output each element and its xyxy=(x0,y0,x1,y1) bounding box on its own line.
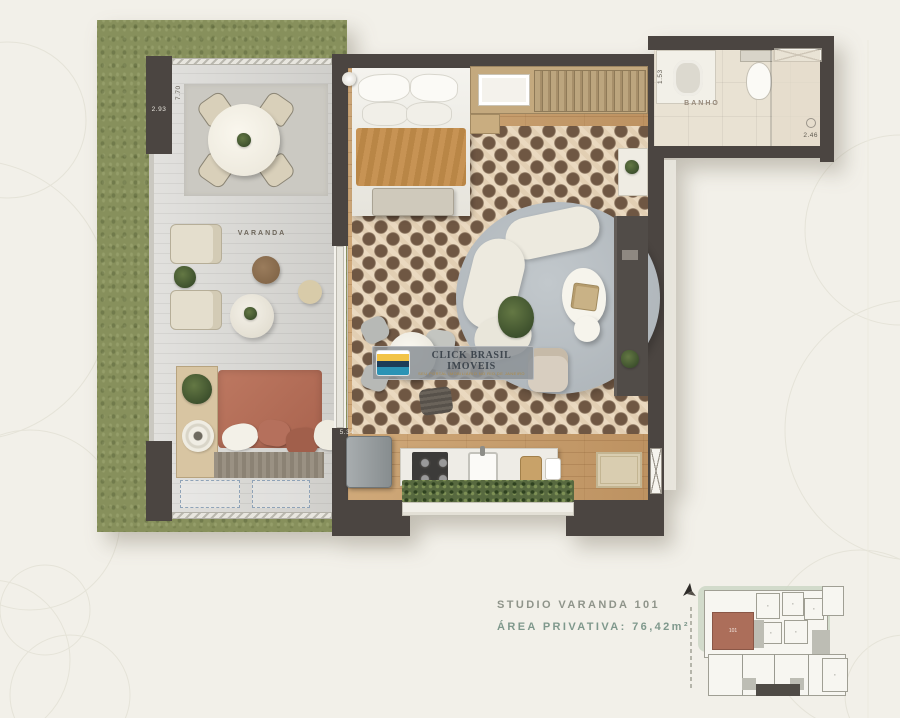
window-planter xyxy=(402,480,574,502)
dimension-1-53: 1.53 xyxy=(657,54,664,84)
wall-studio-bottom-left xyxy=(332,500,410,536)
lounge-chair xyxy=(170,290,222,330)
unit-title: STUDIO VARANDA 101 xyxy=(497,600,690,611)
north-arrow-icon xyxy=(680,581,698,599)
varanda-rail-top xyxy=(172,58,332,65)
keyplan-stair xyxy=(742,678,756,690)
round-side-table xyxy=(252,256,280,284)
kitchen-mat xyxy=(596,452,642,488)
sliding-door xyxy=(334,246,346,428)
watermark-logo-icon xyxy=(376,350,410,376)
dresser-console xyxy=(478,74,530,106)
bistro-chair xyxy=(418,386,453,416)
dimension-5-34: 5.34 xyxy=(334,429,360,436)
bed-pillow xyxy=(409,73,458,103)
table-plant xyxy=(244,307,257,320)
service-door xyxy=(650,448,662,494)
varanda-rail-bottom xyxy=(172,512,332,519)
shelf-plant-small xyxy=(625,160,639,174)
coffee-table xyxy=(574,316,600,342)
dimension-2-93: 2.93 xyxy=(147,106,171,113)
table-centerpiece-plant xyxy=(237,133,251,147)
bedside-lamp xyxy=(342,72,356,86)
shelf-plant xyxy=(182,374,212,404)
bed-pillow xyxy=(362,102,408,126)
floorplan-page: VARANDA 7.70 2.93 xyxy=(0,0,900,718)
shower-drain xyxy=(806,118,816,128)
console-decor xyxy=(622,250,638,260)
bed-pillow xyxy=(406,102,452,126)
varanda-rail-left xyxy=(149,154,154,441)
wall-bath-right xyxy=(820,36,834,162)
tv-console xyxy=(614,216,648,396)
watermark-tagline: SEU PORTAL IMOBILIÁRIO NO RIO DE JANEIRO xyxy=(410,372,533,376)
keyplan-entry xyxy=(756,684,800,696)
console-plant xyxy=(621,350,639,368)
caption-block: STUDIO VARANDA 101 ÁREA PRIVATIVA: 76,42… xyxy=(497,600,690,633)
keyplan-divider xyxy=(808,654,809,696)
toilet-tank xyxy=(740,50,774,62)
varanda-label: VARANDA xyxy=(217,230,307,237)
watermark-banner: CLICK BRASIL IMOVEIS SEU PORTAL IMOBILIÁ… xyxy=(372,346,534,380)
kitchen-window-sill xyxy=(402,502,574,516)
private-area-label: ÁREA PRIVATIVA: 76,42m² xyxy=(497,622,690,633)
faucet xyxy=(480,446,485,456)
dish xyxy=(545,458,561,480)
pouf xyxy=(298,280,322,304)
highlighted-unit-number: 101 xyxy=(713,628,753,634)
keyplan-highlighted-unit: 101 xyxy=(712,612,754,650)
floor-plan: VARANDA 7.70 2.93 xyxy=(97,20,834,532)
refrigerator xyxy=(346,436,392,488)
wall-bath-bottom xyxy=(652,146,834,158)
toilet-bowl xyxy=(746,62,772,100)
dashed-area xyxy=(252,480,310,508)
living-plant xyxy=(498,296,534,338)
wall-studio-bottom-right xyxy=(566,500,664,536)
armchair xyxy=(528,348,568,392)
dimension-2-46: 2.46 xyxy=(792,132,818,139)
wall-varanda-bottom-left xyxy=(146,441,172,521)
exterior-ledge xyxy=(664,160,676,490)
bed-bench xyxy=(372,188,454,216)
lounge-chair xyxy=(170,224,222,264)
shelf-tray xyxy=(182,420,214,452)
wall-varanda-top-left xyxy=(146,56,172,154)
watermark-brand: CLICK BRASIL IMOVEIS xyxy=(410,350,533,372)
keyplan-unit: ▪ xyxy=(756,593,780,619)
watermark-text: CLICK BRASIL IMOVEIS SEU PORTAL IMOBILIÁ… xyxy=(410,350,533,376)
keyplan-unit: ▪ xyxy=(822,658,848,692)
vanity-sink xyxy=(673,60,703,96)
daybed-base xyxy=(214,452,324,478)
bathroom-label: BANHO xyxy=(672,100,732,107)
nightstand xyxy=(470,114,500,134)
keyplan-unit: ▪ xyxy=(784,620,808,644)
dashed-area xyxy=(180,480,240,508)
keyplan-unit: ▪ xyxy=(782,592,804,616)
table-tray xyxy=(570,282,599,311)
site-key-plan: ▪ ▪ ▪ ▪ ▪ 101 ▪ xyxy=(676,576,858,714)
keyplan-annex xyxy=(822,586,844,616)
keyplan-unit: ▪ xyxy=(804,598,824,620)
street-line xyxy=(690,606,692,688)
potted-plant xyxy=(174,266,196,288)
bed-blanket xyxy=(356,128,466,186)
dimension-7-70: 7.70 xyxy=(175,56,182,100)
hanging-clothes xyxy=(534,70,646,112)
